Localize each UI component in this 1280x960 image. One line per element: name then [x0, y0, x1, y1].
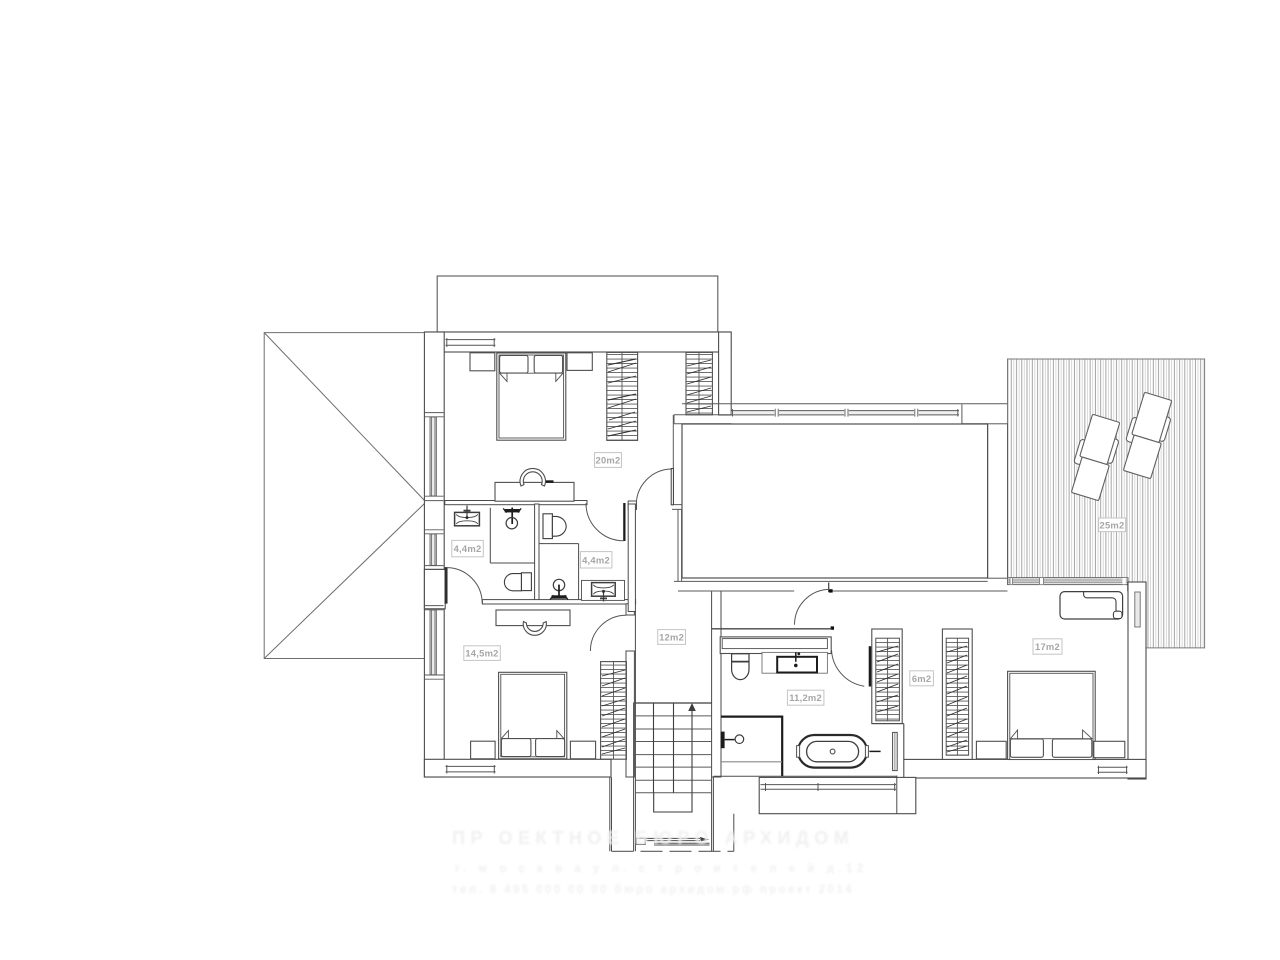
svg-text:25m2: 25m2 — [1100, 519, 1125, 530]
svg-text:4,4m2: 4,4m2 — [582, 554, 610, 565]
svg-text:тел. 8 495 000 00 00 бюро арх: тел. 8 495 000 00 00 бюро архидом.рф про… — [452, 884, 854, 896]
svg-text:20m2: 20m2 — [596, 454, 621, 465]
svg-text:г. м о с к в а у л. с т р о: г. м о с к в а у л. с т р о и т е л е й … — [455, 863, 868, 875]
svg-text:14,5m2: 14,5m2 — [465, 648, 498, 659]
svg-text:12m2: 12m2 — [659, 631, 684, 642]
svg-text:6m2: 6m2 — [912, 673, 932, 684]
svg-text:11,2m2: 11,2m2 — [789, 692, 822, 703]
svg-text:ПР ОЕКТНОЕ БЮРО АРХИДОМ: ПР ОЕКТНОЕ БЮРО АРХИДОМ — [452, 828, 854, 848]
svg-text:17m2: 17m2 — [1035, 641, 1060, 652]
svg-text:4,4m2: 4,4m2 — [454, 543, 482, 554]
